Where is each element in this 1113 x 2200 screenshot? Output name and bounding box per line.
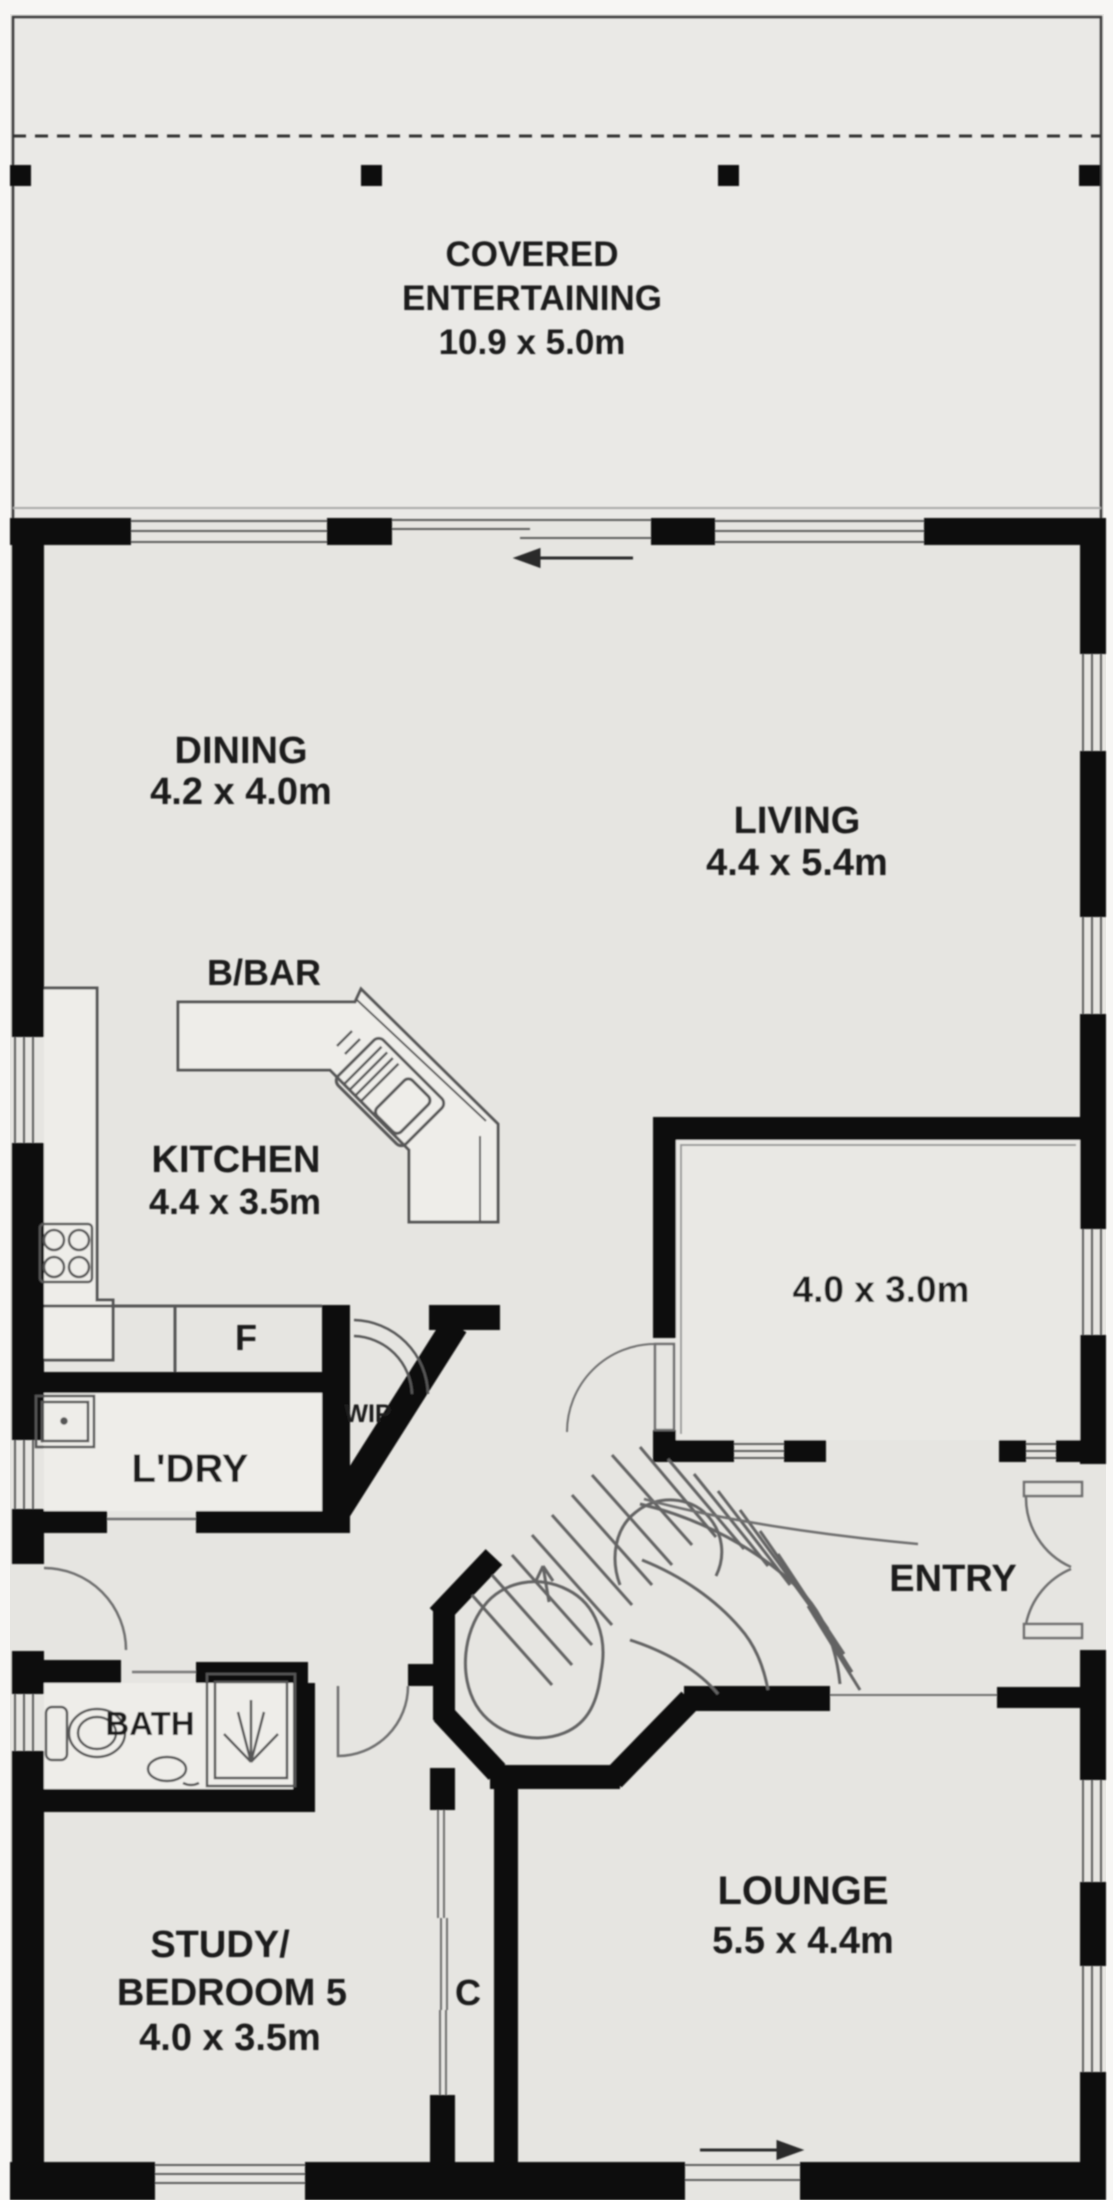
svg-text:B/BAR: B/BAR: [207, 952, 321, 993]
svg-text:C: C: [455, 1972, 481, 2013]
svg-text:F: F: [235, 1317, 257, 1358]
svg-text:STUDY/: STUDY/: [150, 1924, 290, 1966]
svg-text:10.9 x 5.0m: 10.9 x 5.0m: [439, 323, 626, 362]
svg-text:DINING: DINING: [175, 730, 308, 772]
svg-text:ENTERTAINING: ENTERTAINING: [402, 279, 662, 318]
svg-text:LIVING: LIVING: [734, 800, 861, 842]
svg-text:4.2 x 4.0m: 4.2 x 4.0m: [150, 771, 332, 813]
svg-text:BATH: BATH: [105, 1705, 194, 1742]
svg-text:WIP: WIP: [344, 1400, 391, 1428]
svg-text:L'DRY: L'DRY: [132, 1447, 249, 1491]
svg-text:ENTRY: ENTRY: [889, 1558, 1016, 1600]
svg-text:4.0 x 3.5m: 4.0 x 3.5m: [139, 2017, 321, 2059]
svg-text:COVERED: COVERED: [445, 235, 618, 274]
svg-text:BEDROOM 5: BEDROOM 5: [117, 1972, 347, 2014]
svg-text:LOUNGE: LOUNGE: [717, 1869, 888, 1913]
svg-text:4.4 x 5.4m: 4.4 x 5.4m: [706, 842, 888, 884]
svg-text:5.5 x 4.4m: 5.5 x 4.4m: [712, 1920, 894, 1962]
svg-text:4.4 x 3.5m: 4.4 x 3.5m: [149, 1181, 321, 1222]
svg-text:KITCHEN: KITCHEN: [152, 1139, 321, 1181]
svg-text:4.0 x 3.0m: 4.0 x 3.0m: [793, 1269, 970, 1310]
